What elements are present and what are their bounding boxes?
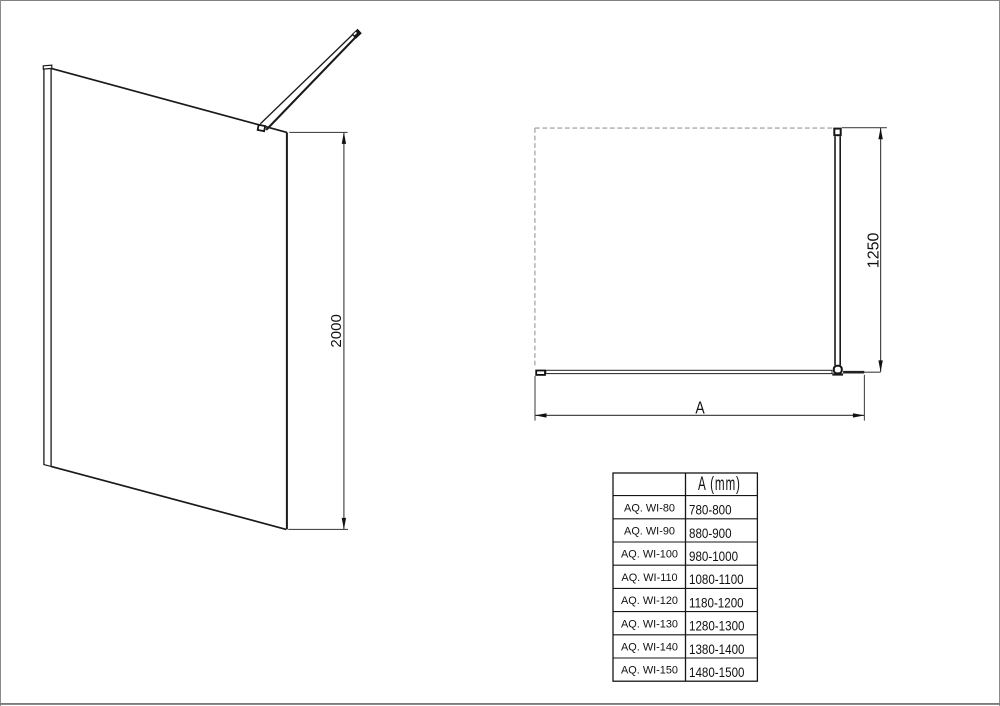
svg-text:AQ. WI-130: AQ. WI-130 <box>621 618 678 630</box>
svg-text:880-900: 880-900 <box>689 526 732 541</box>
svg-text:A: A <box>695 399 705 418</box>
svg-text:1080-1100: 1080-1100 <box>689 572 744 587</box>
svg-text:1480-1500: 1480-1500 <box>689 665 744 680</box>
svg-text:1380-1400: 1380-1400 <box>689 642 744 657</box>
svg-text:AQ. WI-140: AQ. WI-140 <box>621 641 678 653</box>
svg-text:2000: 2000 <box>328 314 345 347</box>
svg-text:AQ. WI-120: AQ. WI-120 <box>621 595 678 607</box>
svg-text:1280-1300: 1280-1300 <box>689 619 744 634</box>
svg-text:1250: 1250 <box>866 233 883 269</box>
svg-text:AQ. WI-110: AQ. WI-110 <box>621 572 677 584</box>
svg-text:980-1000: 980-1000 <box>689 549 738 564</box>
svg-text:AQ. WI-100: AQ. WI-100 <box>621 549 678 561</box>
svg-text:1180-1200: 1180-1200 <box>689 596 744 611</box>
svg-text:A (mm): A (mm) <box>698 475 741 495</box>
svg-text:AQ. WI-150: AQ. WI-150 <box>621 665 678 677</box>
svg-text:AQ. WI-80: AQ. WI-80 <box>624 502 675 514</box>
svg-text:AQ. WI-90: AQ. WI-90 <box>624 525 675 537</box>
svg-text:780-800: 780-800 <box>689 503 732 518</box>
